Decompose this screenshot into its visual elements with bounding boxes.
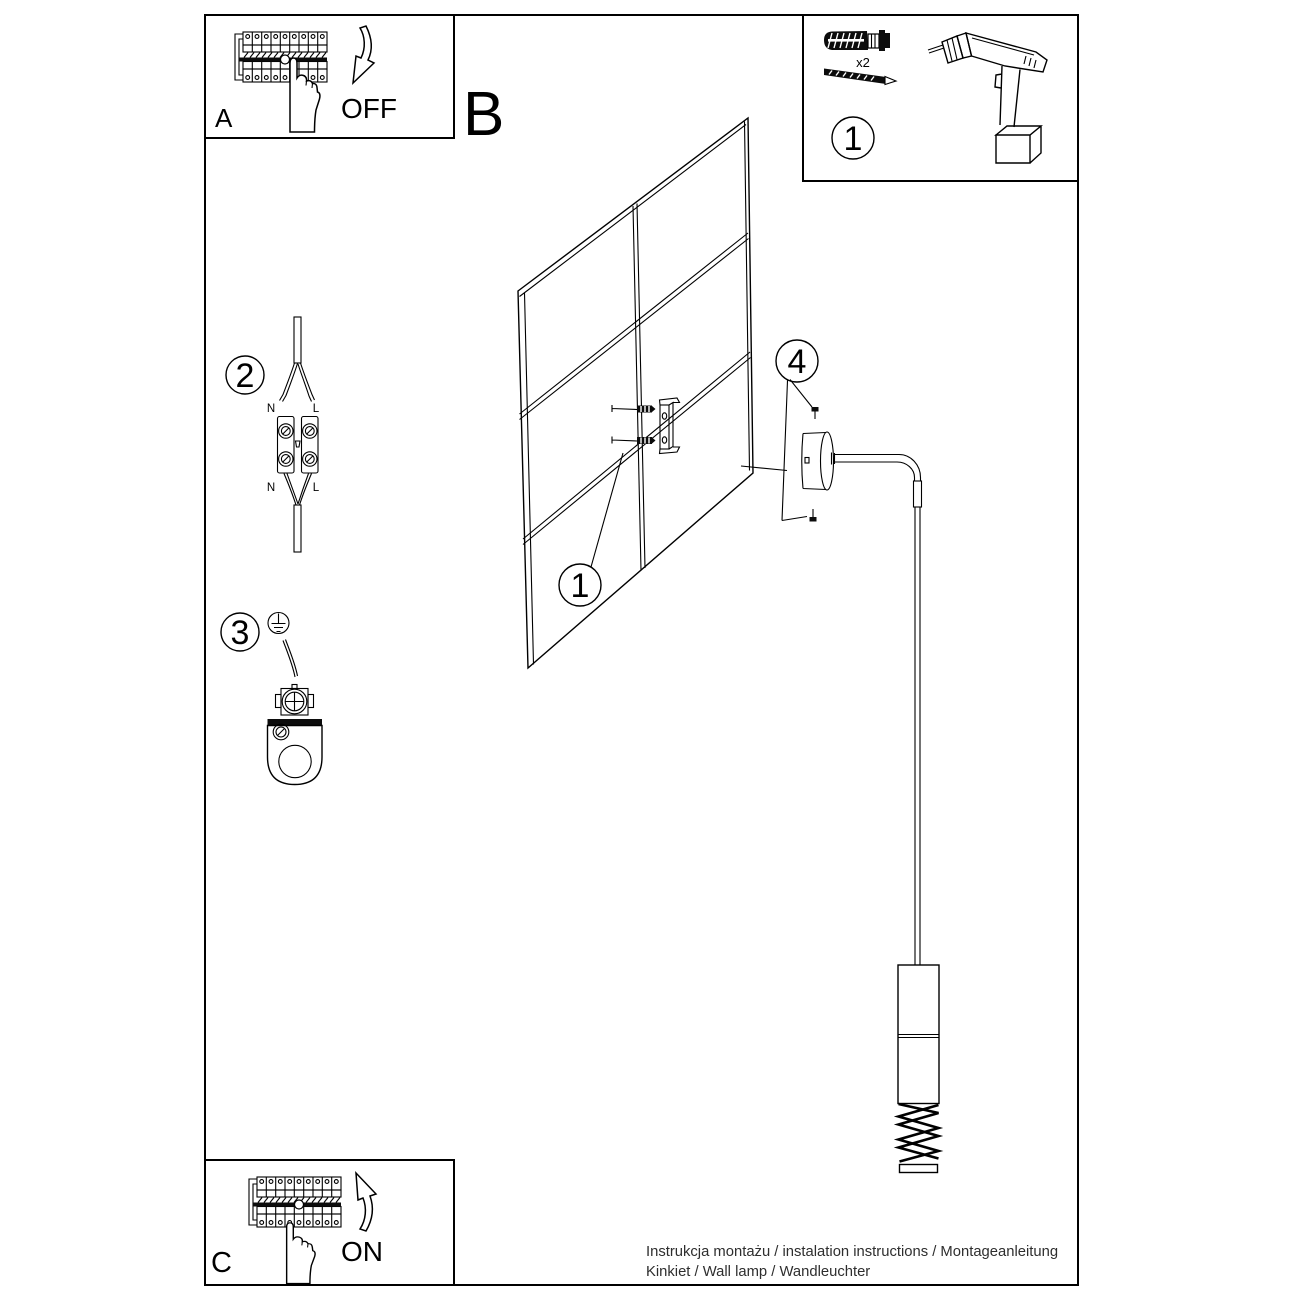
- wire-label-n-top: N: [267, 403, 275, 415]
- grounding-diagram: 3: [221, 613, 322, 785]
- canopy-and-lamp: 4: [741, 340, 939, 1173]
- on-label: ON: [341, 1236, 383, 1267]
- lamp-arm: [832, 453, 922, 966]
- arrow-up-icon: [356, 1173, 376, 1231]
- wall-canopy-icon: [802, 432, 834, 490]
- wall-callout-number: 1: [571, 567, 590, 605]
- earth-symbol-icon: [268, 613, 289, 634]
- panel-c-box: [205, 1160, 454, 1285]
- off-label: OFF: [341, 93, 397, 124]
- wire-label-l-top: L: [313, 403, 320, 415]
- wiring-diagram: 2 N L N L: [226, 317, 320, 552]
- mounting-bracket-icon: [660, 398, 680, 454]
- drill-icon: [928, 33, 1047, 163]
- terminal-block-left: [278, 417, 295, 474]
- step-3-number: 3: [231, 614, 250, 652]
- step-4-number: 4: [788, 343, 807, 381]
- footer-line-1: Instrukcja montażu / instalation instruc…: [646, 1244, 1058, 1260]
- wall-drawing: [518, 118, 753, 668]
- pressing-hand-icon: [287, 1223, 315, 1284]
- cable-top: [294, 317, 301, 363]
- instruction-sheet: A OFF B C ON x2 1 2: [0, 0, 1300, 1300]
- terminal-screws: [279, 424, 317, 466]
- terminal-block-right: [302, 417, 319, 474]
- main-frame: [205, 15, 1078, 1285]
- step-1-number: 1: [844, 120, 863, 158]
- cable-bottom: [294, 505, 301, 552]
- screw-icon: [824, 69, 896, 85]
- wire-label-n-bottom: N: [267, 482, 275, 494]
- lamp-holder-plate: [268, 726, 323, 785]
- step-2-number: 2: [236, 357, 255, 395]
- lamp-shade-icon: [898, 965, 939, 1173]
- instruction-drawing: A OFF B C ON x2 1 2: [0, 0, 1300, 1300]
- panel-b-label: B: [463, 80, 504, 149]
- anchor-quantity-label: x2: [856, 55, 870, 70]
- panel-c-label: C: [211, 1247, 232, 1279]
- mounting-screws-and-bracket: [612, 398, 680, 454]
- panel-a-label: A: [215, 103, 233, 133]
- wire-label-l-bottom: L: [313, 482, 320, 494]
- arrow-down-icon: [353, 26, 374, 83]
- footer-line-2: Kinkiet / Wall lamp / Wandleuchter: [646, 1264, 870, 1280]
- wall-plug-icon: [824, 30, 890, 51]
